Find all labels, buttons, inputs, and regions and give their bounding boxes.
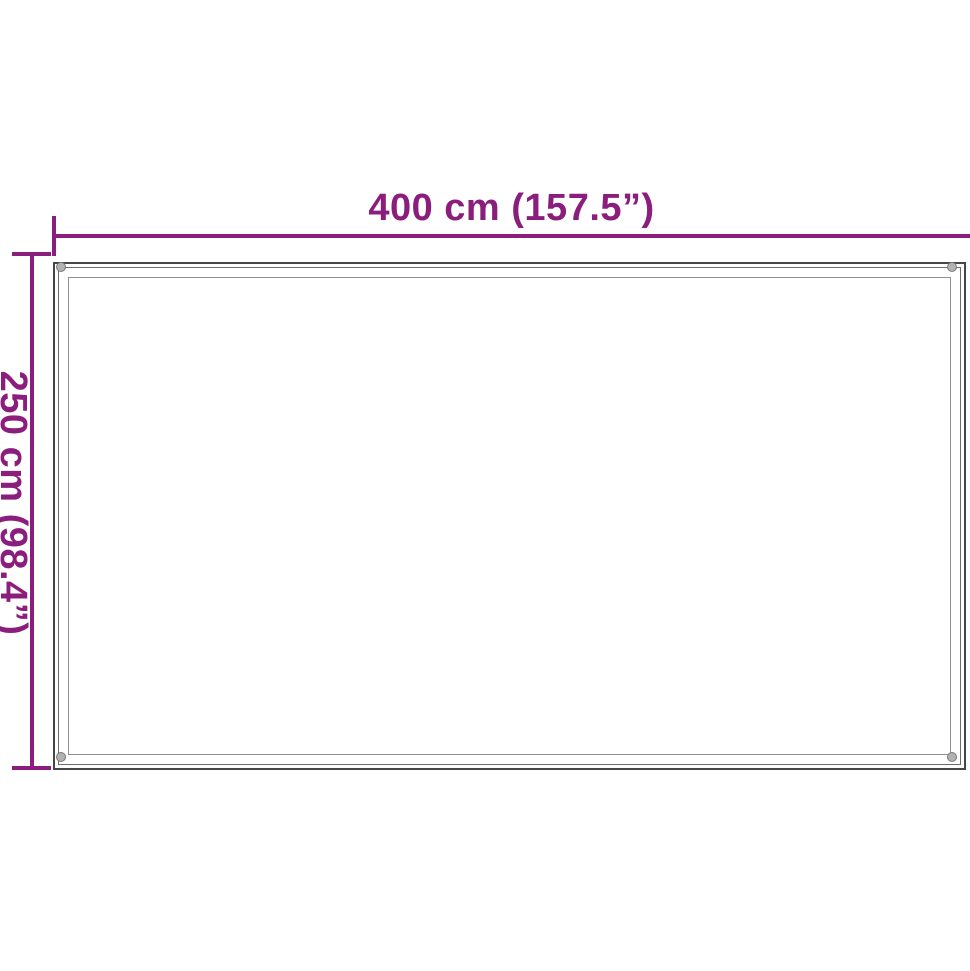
height-dimension-tick-bottom <box>12 766 51 770</box>
height-dimension-label: 250 cm (98.4”) <box>0 353 33 653</box>
width-dimension-line <box>52 234 970 238</box>
carpet-hem-stitch-line <box>68 277 951 755</box>
width-dimension-tick-left <box>52 216 56 256</box>
height-dimension-line <box>30 252 34 770</box>
eyelet-grommet-icon <box>948 263 956 271</box>
product-dimension-diagram: 400 cm (157.5”) 250 cm (98.4”) <box>0 0 970 971</box>
eyelet-grommet-icon <box>948 753 956 761</box>
eyelet-grommet-icon <box>57 263 65 271</box>
width-dimension-label: 400 cm (157.5”) <box>53 188 970 228</box>
height-dimension-tick-top <box>12 252 51 256</box>
eyelet-grommet-icon <box>57 753 65 761</box>
